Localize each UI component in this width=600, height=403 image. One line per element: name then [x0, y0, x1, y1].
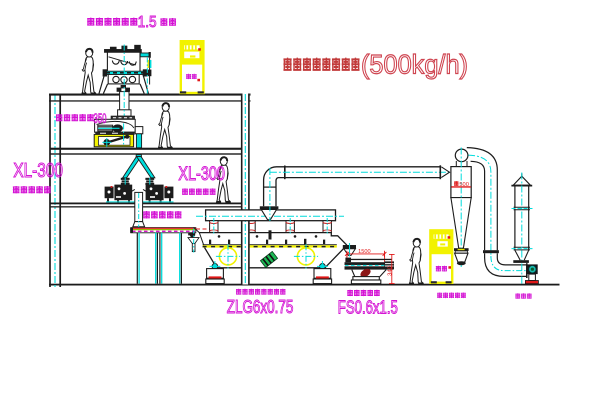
svg-text:340: 340 — [388, 266, 394, 276]
svg-text:350: 350 — [94, 111, 107, 126]
svg-text:XL-300: XL-300 — [13, 160, 63, 182]
svg-text:(500kg/h): (500kg/h) — [361, 50, 468, 80]
svg-text:XL-300: XL-300 — [178, 164, 225, 185]
svg-text:1.5: 1.5 — [138, 14, 157, 31]
svg-text:500: 500 — [459, 182, 469, 188]
svg-text:ZLG6x0.75: ZLG6x0.75 — [227, 297, 293, 317]
svg-text:1500: 1500 — [358, 249, 371, 255]
svg-text:FS0.6x1.5: FS0.6x1.5 — [338, 298, 398, 318]
